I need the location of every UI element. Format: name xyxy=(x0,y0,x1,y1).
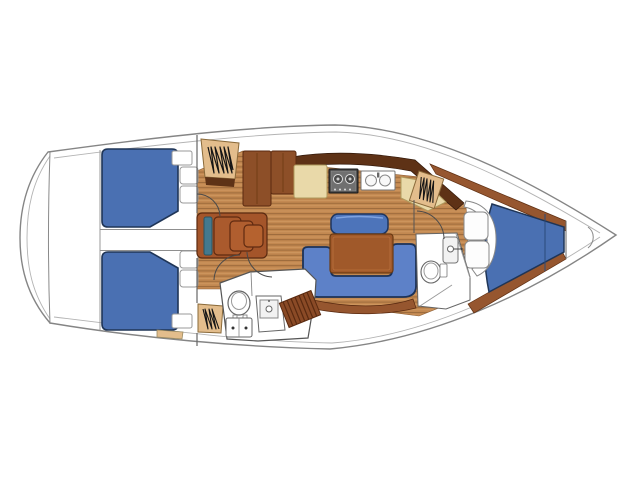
drawer-unit xyxy=(226,318,252,337)
cabinet-unit xyxy=(271,151,296,194)
boat-floorplan-canvas xyxy=(0,0,638,478)
pillow xyxy=(180,186,198,203)
deck-locker-strip xyxy=(157,330,183,339)
double-berth xyxy=(102,252,178,330)
pillow xyxy=(180,270,198,287)
drawer-knob xyxy=(232,327,235,330)
pillow xyxy=(180,251,198,268)
yacht-floorplan xyxy=(0,0,638,478)
two-burner-stove xyxy=(329,169,358,193)
step-tread-edge xyxy=(204,217,212,255)
seat-cushion xyxy=(464,212,488,240)
pillow xyxy=(180,167,198,184)
sink-vanity xyxy=(256,296,285,332)
drawer-knob xyxy=(245,327,248,330)
hanging-locker-aft-starboard xyxy=(198,304,223,333)
double-berth xyxy=(102,149,178,227)
seat-cushion xyxy=(465,241,489,268)
sink-basin xyxy=(380,175,391,186)
corner-seat xyxy=(172,314,192,328)
companionway xyxy=(197,213,267,258)
hanging-locker-aft-port xyxy=(201,139,239,187)
sink-basin xyxy=(266,306,272,312)
counter-left xyxy=(294,165,327,198)
dining-table xyxy=(330,234,393,273)
corner-seat xyxy=(172,151,192,165)
faucet xyxy=(268,300,270,302)
aft-head xyxy=(220,269,321,341)
faucet xyxy=(377,173,379,178)
step xyxy=(244,225,263,247)
double-sink xyxy=(361,171,395,190)
sink-basin xyxy=(366,175,377,186)
sink-basin xyxy=(448,246,454,252)
